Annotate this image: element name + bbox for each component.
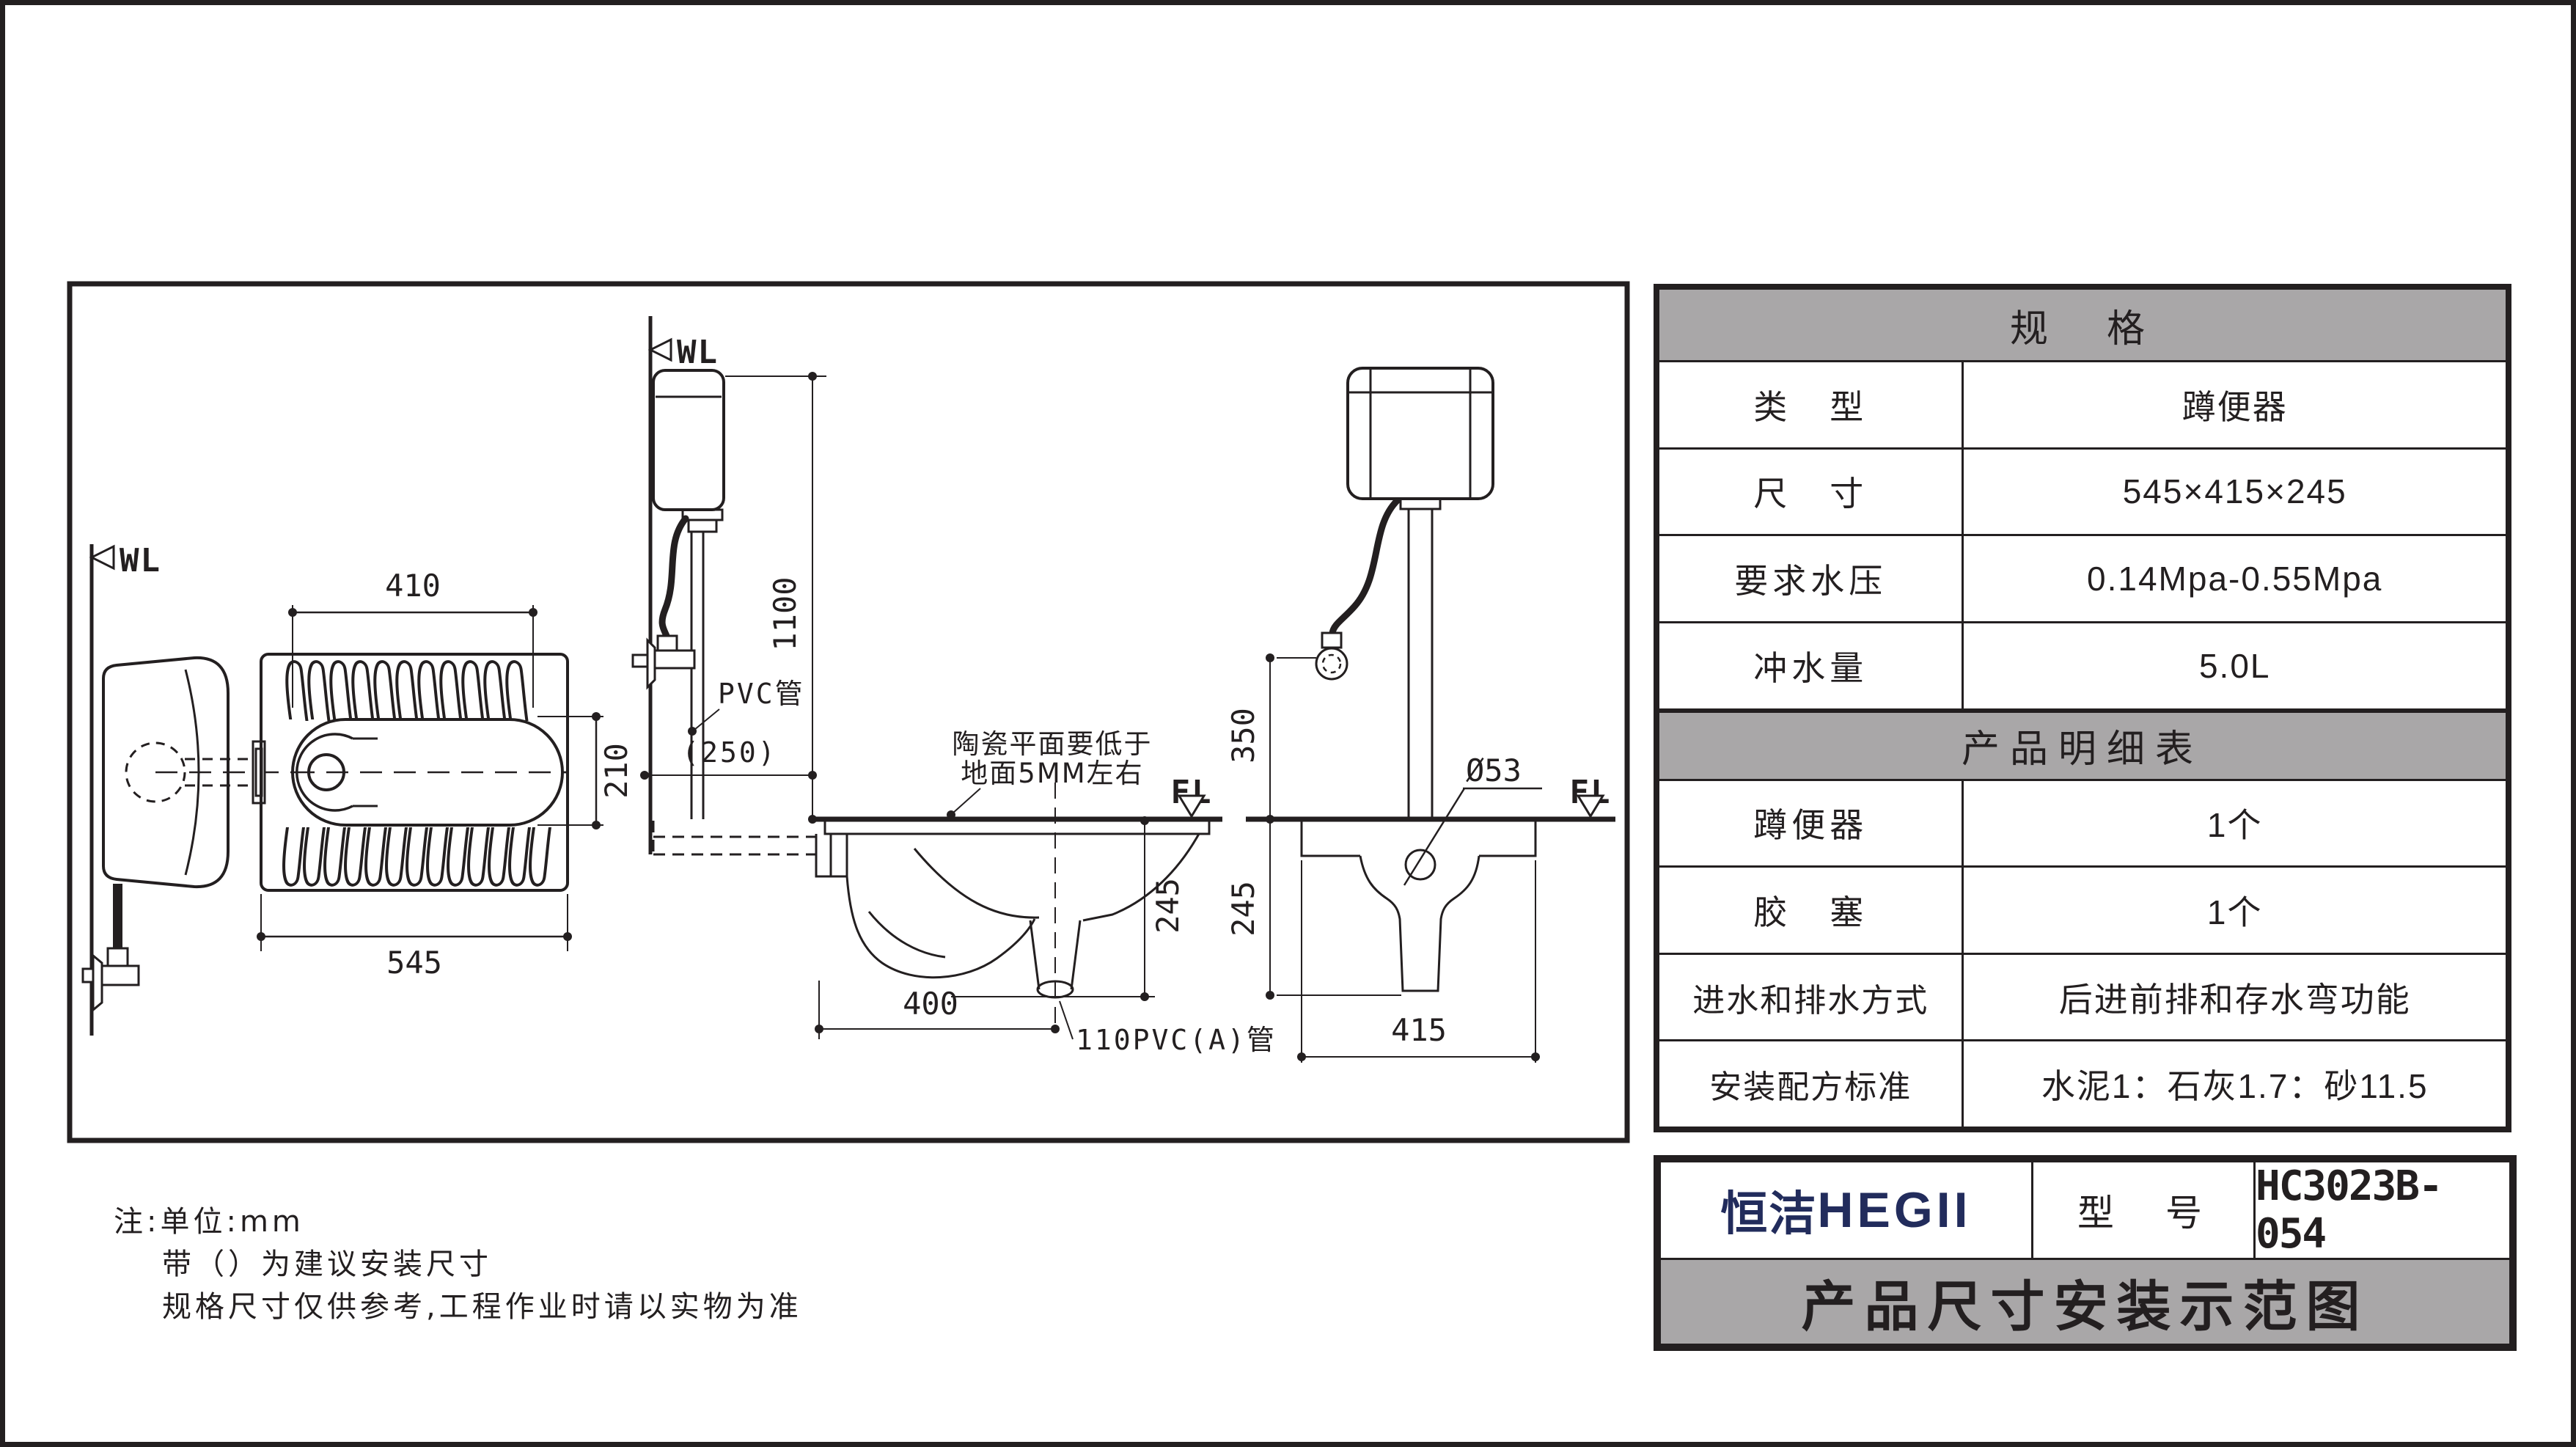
row-value: 545×415×245	[1964, 450, 2506, 535]
valve-body	[102, 966, 139, 985]
row-label: 安装配方标准	[1659, 1041, 1964, 1127]
hose-connector	[1316, 648, 1347, 679]
valve-nut	[658, 636, 677, 651]
outlet-pipe-label: 110PVC(A)管	[1076, 1024, 1277, 1056]
wl-label: WL	[120, 542, 161, 579]
row-value: 5.0L	[1964, 623, 2506, 708]
brand-logo-en: HEGII	[1817, 1182, 1971, 1239]
dim-545: 545	[257, 894, 572, 981]
title-block-top-row: 恒洁 HEGII 型 号 HC3023B-054	[1661, 1162, 2509, 1258]
table-row: 类 型 蹲便器	[1659, 362, 2506, 450]
dim-250: (250)	[640, 736, 812, 780]
dim-400-label: 400	[903, 986, 958, 1022]
valve-wall-plate	[647, 640, 655, 687]
row-value: 1个	[1964, 781, 2506, 866]
supply-pipe	[113, 884, 122, 948]
wl-arrow-icon	[650, 340, 671, 360]
dim-250-label: (250)	[682, 736, 777, 769]
row-label: 冲水量	[1659, 623, 1964, 708]
hose-nut	[1322, 633, 1341, 648]
spec-table-title: 规 格	[1659, 290, 2506, 362]
top-view: WL	[83, 542, 634, 1036]
table-row: 胶 塞 1个	[1659, 868, 2506, 955]
leader-line	[1060, 1001, 1073, 1039]
dim-350-label: 350	[1225, 708, 1261, 763]
valve-nut	[108, 948, 128, 966]
dim-415: 415	[1297, 860, 1540, 1063]
dim-350-245: 350 245	[1225, 653, 1401, 1000]
pan-funnel	[1360, 856, 1479, 991]
row-label: 类 型	[1659, 362, 1964, 447]
cistern-neck	[1401, 499, 1440, 509]
side-view: WL PVC管 1100	[633, 316, 1277, 1056]
ceramic-note-line1: 陶瓷平面要低于	[953, 728, 1153, 760]
notes: 注:单位:mm 带（）为建议安装尺寸 规格尺寸仅供参考,工程作业时请以实物为准	[114, 1201, 802, 1328]
row-value: 0.14Mpa-0.55Mpa	[1964, 536, 2506, 621]
row-label: 尺 寸	[1659, 450, 1964, 535]
valve-wall-plate	[93, 956, 102, 1010]
row-label: 要求水压	[1659, 536, 1964, 621]
front-view: 350 245 Ø53 FL 415	[1225, 368, 1615, 1063]
brand-logo: 恒洁 HEGII	[1661, 1162, 2033, 1258]
sheet-title-banner: 产品尺寸安装示范图	[1661, 1258, 2509, 1344]
rib-pattern-top	[282, 662, 528, 721]
spec-tables: 规 格 类 型 蹲便器 尺 寸 545×415×245 要求水压 0.14Mpa…	[1654, 284, 2511, 1132]
wl-label: WL	[677, 334, 719, 371]
trap-inner-curve2	[869, 912, 945, 957]
row-label: 胶 塞	[1659, 868, 1964, 953]
row-label: 蹲便器	[1659, 781, 1964, 866]
dim-1100-label: 1100	[767, 576, 803, 651]
table-row: 安装配方标准 水泥1：石灰1.7：砂11.5	[1659, 1041, 2506, 1127]
supply-hose	[662, 519, 686, 636]
rib-pattern-bottom	[279, 827, 551, 885]
title-block: 恒洁 HEGII 型 号 HC3023B-054 产品尺寸安装示范图	[1654, 1155, 2517, 1351]
model-label: 型 号	[2033, 1162, 2256, 1258]
pvc-pipe-label: PVC管	[718, 678, 805, 710]
cistern-side	[653, 370, 724, 510]
leader-line	[953, 788, 980, 813]
cistern-neck2	[689, 520, 716, 532]
table-row: 冲水量 5.0L	[1659, 623, 2506, 711]
dim-410-label: 410	[385, 568, 441, 604]
installation-sheet: WL	[0, 0, 2576, 1447]
supply-hose	[1332, 501, 1397, 633]
note-line-1: 注:单位:mm	[114, 1201, 802, 1243]
note-line-3: 规格尺寸仅供参考,工程作业时请以实物为准	[114, 1286, 802, 1328]
leader-dot	[688, 727, 697, 736]
row-value: 1个	[1964, 868, 2506, 953]
wl-arrow-icon	[92, 546, 114, 568]
brand-logo-cn: 恒洁	[1720, 1176, 1817, 1244]
dim-210-label: 210	[598, 743, 634, 799]
dim-400: 400	[815, 981, 1060, 1039]
trap-outer-wall	[847, 876, 1035, 978]
inlet-spud	[253, 741, 265, 803]
dim-245-side-label: 245	[1150, 878, 1186, 934]
leader-line	[694, 709, 719, 730]
dim-245-front-label: 245	[1225, 881, 1261, 937]
row-value: 蹲便器	[1964, 362, 2506, 447]
detail-table-title: 产品明细表	[1659, 711, 2506, 781]
model-value: HC3023B-054	[2256, 1162, 2509, 1258]
table-row: 蹲便器 1个	[1659, 781, 2506, 868]
ceramic-note-line2: 地面5MM左右	[961, 758, 1143, 789]
row-label: 进水和排水方式	[1659, 955, 1964, 1040]
dim-545-label: 545	[386, 945, 442, 981]
dim-diameter-label: Ø53	[1466, 752, 1522, 788]
pan-flange-left	[1302, 821, 1360, 856]
row-value: 后进前排和存水弯功能	[1964, 955, 2506, 1040]
table-row: 进水和排水方式 后进前排和存水弯功能	[1659, 955, 2506, 1042]
note-line-2: 带（）为建议安装尺寸	[114, 1243, 802, 1286]
dim-415-label: 415	[1391, 1012, 1447, 1048]
row-value: 水泥1：石灰1.7：砂11.5	[1964, 1041, 2506, 1127]
outlet-wall	[1030, 920, 1039, 989]
table-row: 要求水压 0.14Mpa-0.55Mpa	[1659, 536, 2506, 623]
outlet-wall	[1071, 920, 1080, 989]
valve-body	[652, 651, 694, 668]
trap-inner-curve	[914, 849, 1039, 917]
table-row: 尺 寸 545×415×245	[1659, 450, 2506, 537]
hose-connector-inner	[1323, 655, 1340, 673]
pan-flange-right	[1479, 821, 1535, 856]
